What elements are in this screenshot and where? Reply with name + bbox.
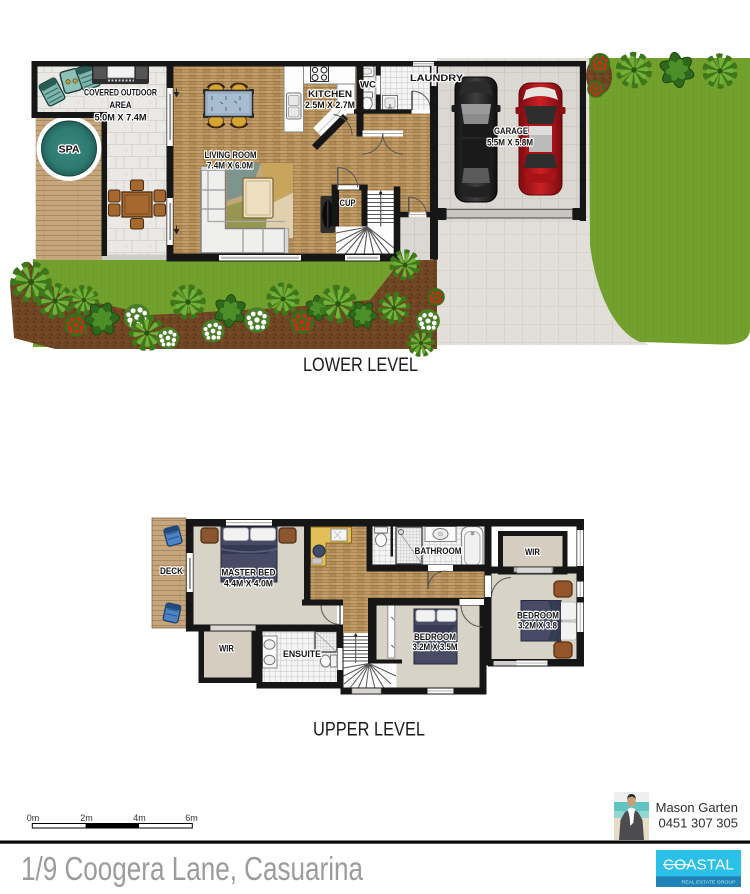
svg-text:0451 307 305: 0451 307 305 — [658, 816, 738, 831]
svg-text:SPA: SPA — [59, 145, 80, 156]
svg-text:3.2M X 3.5M: 3.2M X 3.5M — [413, 642, 458, 652]
svg-text:WC: WC — [360, 80, 376, 91]
svg-text:MASTER BED: MASTER BED — [222, 568, 276, 579]
svg-text:4m: 4m — [133, 813, 146, 823]
svg-text:0m: 0m — [27, 813, 40, 823]
svg-text:COASTAL: COASTAL — [663, 858, 734, 874]
svg-text:7.4M X 6.0M: 7.4M X 6.0M — [207, 161, 253, 171]
svg-text:LAUNDRY: LAUNDRY — [410, 73, 464, 84]
svg-text:6m: 6m — [185, 813, 198, 823]
svg-text:COVERED OUTDOOR: COVERED OUTDOOR — [84, 88, 157, 98]
svg-text:3.2M X 3.8: 3.2M X 3.8 — [518, 621, 557, 631]
svg-text:GARAGE: GARAGE — [494, 126, 528, 137]
svg-text:WIR: WIR — [219, 644, 234, 655]
svg-text:2m: 2m — [80, 813, 93, 823]
svg-text:WIR: WIR — [525, 547, 540, 558]
svg-text:CUP: CUP — [340, 198, 357, 209]
svg-text:LOWER LEVEL: LOWER LEVEL — [303, 354, 418, 376]
svg-text:REAL ESTATE GROUP: REAL ESTATE GROUP — [682, 880, 736, 886]
svg-text:LIVING ROOM: LIVING ROOM — [205, 150, 257, 161]
svg-text:AREA: AREA — [110, 100, 132, 110]
svg-text:1/9 Coogera Lane, Casuarina: 1/9 Coogera Lane, Casuarina — [21, 850, 364, 887]
svg-text:KITCHEN: KITCHEN — [308, 89, 352, 100]
svg-text:5.5M X 5.8M: 5.5M X 5.8M — [487, 138, 533, 148]
svg-text:2.5M X 2.7M: 2.5M X 2.7M — [305, 100, 355, 110]
svg-text:BATHROOM: BATHROOM — [415, 546, 462, 557]
svg-text:UPPER LEVEL: UPPER LEVEL — [313, 719, 425, 741]
svg-text:Mason Garten: Mason Garten — [656, 800, 738, 815]
svg-text:DECK: DECK — [160, 566, 183, 577]
svg-text:5.0M X 7.4M: 5.0M X 7.4M — [95, 113, 147, 123]
svg-text:4.4M X 4.0M: 4.4M X 4.0M — [224, 579, 273, 589]
svg-text:ENSUITE: ENSUITE — [283, 649, 321, 660]
